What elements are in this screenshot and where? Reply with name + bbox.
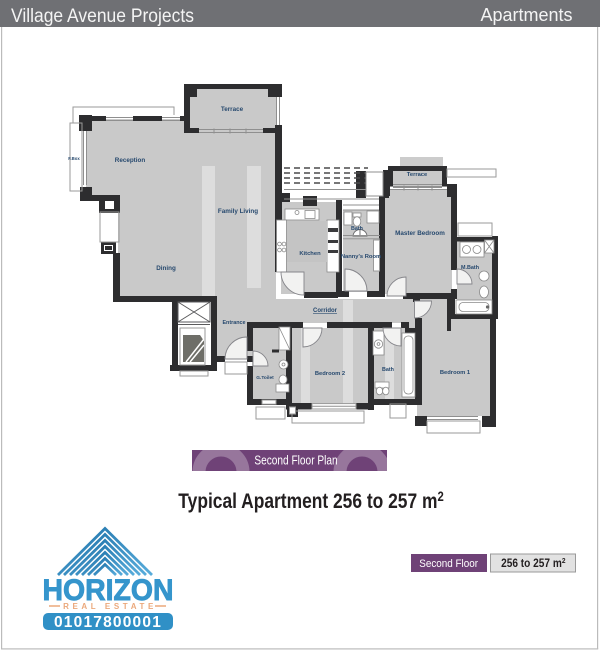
svg-text:Reception: Reception (115, 157, 146, 164)
svg-text:Entrance: Entrance (222, 320, 245, 326)
svg-text:Bedroom 2: Bedroom 2 (315, 371, 345, 377)
svg-text:REAL ESTATE: REAL ESTATE (63, 602, 157, 611)
svg-text:G.Toilet: G.Toilet (256, 375, 274, 381)
svg-text:Apartments: Apartments (480, 5, 572, 25)
svg-text:F.Box: F.Box (68, 156, 80, 161)
svg-text:Terrace: Terrace (407, 172, 428, 178)
svg-text:256 to 257 m2: 256 to 257 m2 (501, 557, 565, 570)
svg-text:Second Floor: Second Floor (419, 559, 478, 571)
svg-text:01017800001: 01017800001 (54, 614, 162, 631)
svg-text:Village Avenue Projects: Village Avenue Projects (11, 4, 194, 26)
svg-text:M.Bath: M.Bath (461, 265, 479, 271)
svg-text:Master Bedroom: Master Bedroom (395, 230, 445, 237)
svg-text:Bath: Bath (351, 226, 363, 232)
svg-text:Family Living: Family Living (218, 208, 258, 215)
svg-text:Dining: Dining (156, 265, 176, 272)
svg-text:Terrace: Terrace (221, 106, 244, 113)
svg-text:Typical Apartment 256 to 257 m: Typical Apartment 256 to 257 m2 (178, 488, 443, 514)
svg-text:Bath: Bath (382, 367, 394, 373)
svg-text:Second Floor Plan: Second Floor Plan (254, 453, 337, 467)
svg-text:Corridor: Corridor (313, 308, 338, 314)
svg-text:Nanny's Room: Nanny's Room (341, 254, 381, 260)
svg-text:Kitchen: Kitchen (299, 251, 321, 257)
svg-text:Bedroom 1: Bedroom 1 (440, 370, 471, 376)
